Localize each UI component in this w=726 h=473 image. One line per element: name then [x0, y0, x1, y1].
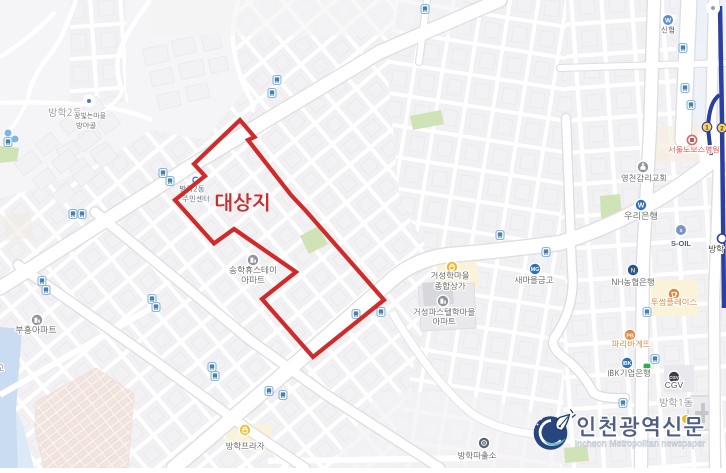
svg-text:IBK: IBK [623, 361, 632, 367]
svg-text:PB: PB [626, 333, 634, 339]
svg-text:W: W [638, 203, 645, 210]
svg-text:MG: MG [531, 267, 540, 273]
svg-text:2: 2 [720, 125, 724, 132]
svg-text:S: S [680, 228, 683, 233]
svg-text:Incheon Metropolitan newspaper: Incheon Metropolitan newspaper [575, 439, 706, 449]
svg-text:S-OIL: S-OIL [671, 239, 691, 248]
svg-text:W: W [665, 17, 672, 24]
svg-text:N: N [631, 267, 636, 274]
svg-text:CGV: CGV [665, 380, 684, 390]
svg-text:1: 1 [705, 124, 709, 131]
